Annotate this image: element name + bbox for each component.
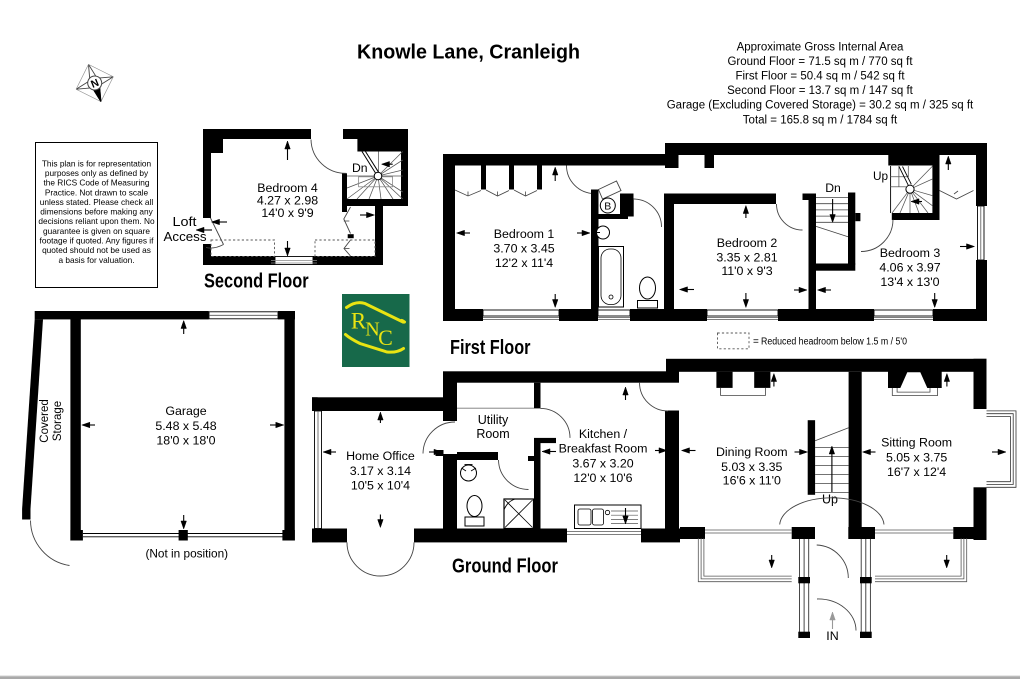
svg-text:Up: Up bbox=[822, 493, 838, 507]
svg-text:4.06 x 3.97: 4.06 x 3.97 bbox=[879, 261, 940, 275]
svg-text:Kitchen /: Kitchen / bbox=[579, 427, 628, 441]
svg-text:Covered: Covered bbox=[39, 399, 51, 442]
svg-text:Practice. Not drawn to scale: Practice. Not drawn to scale bbox=[45, 187, 149, 197]
svg-text:5.05 x 3.75: 5.05 x 3.75 bbox=[886, 451, 947, 465]
svg-text:Garage: Garage bbox=[165, 404, 206, 418]
svg-text:Dn: Dn bbox=[825, 181, 841, 195]
svg-text:3.67 x 3.20: 3.67 x 3.20 bbox=[572, 457, 633, 471]
svg-text:3.17 x 3.14: 3.17 x 3.14 bbox=[350, 464, 411, 478]
svg-text:Second Floor: Second Floor bbox=[204, 270, 309, 293]
svg-text:5.48 x 5.48: 5.48 x 5.48 bbox=[155, 419, 216, 433]
svg-text:Home Office: Home Office bbox=[346, 449, 415, 463]
svg-text:a basis for valuation.: a basis for valuation. bbox=[58, 255, 134, 265]
svg-text:11'0 x 9'3: 11'0 x 9'3 bbox=[721, 264, 772, 278]
svg-text:Bedroom 1: Bedroom 1 bbox=[494, 227, 555, 241]
svg-text:3.70 x 3.45: 3.70 x 3.45 bbox=[493, 242, 554, 256]
svg-text:guarantee is given on square: guarantee is given on square bbox=[43, 226, 150, 236]
svg-text:purposes only as defined by: purposes only as defined by bbox=[45, 168, 149, 178]
svg-text:First Floor = 50.4 sq m / 542: First Floor = 50.4 sq m / 542 sq ft bbox=[735, 71, 905, 83]
svg-text:(Not in position): (Not in position) bbox=[145, 547, 228, 561]
svg-text:12'2 x 11'4: 12'2 x 11'4 bbox=[495, 256, 553, 270]
svg-text:14'0 x 9'9: 14'0 x 9'9 bbox=[261, 206, 313, 220]
svg-text:C: C bbox=[378, 325, 393, 350]
svg-text:the RICS Code of Measuring: the RICS Code of Measuring bbox=[43, 178, 149, 188]
svg-text:Sitting Room: Sitting Room bbox=[881, 436, 952, 450]
svg-text:3.35 x 2.81: 3.35 x 2.81 bbox=[716, 251, 777, 265]
svg-text:10'5 x 10'4: 10'5 x 10'4 bbox=[351, 479, 410, 493]
svg-text:5.03 x 3.35: 5.03 x 3.35 bbox=[721, 460, 782, 474]
svg-text:quoted should not be used as: quoted should not be used as bbox=[42, 245, 151, 255]
svg-text:18'0 x 18'0: 18'0 x 18'0 bbox=[156, 434, 215, 448]
svg-text:16'7 x 12'4: 16'7 x 12'4 bbox=[887, 465, 946, 479]
svg-text:Reduced headroom below 1.5 m /: Reduced headroom below 1.5 m / 5'0 bbox=[761, 337, 907, 348]
svg-text:Utility: Utility bbox=[478, 413, 509, 427]
svg-text:Dining Room: Dining Room bbox=[716, 445, 788, 459]
svg-text:footage if quoted. Any figures: footage if quoted. Any figures if bbox=[40, 236, 155, 246]
svg-text:16'6 x 11'0: 16'6 x 11'0 bbox=[723, 474, 781, 488]
svg-text:Room: Room bbox=[476, 427, 509, 441]
svg-text:Bedroom 3: Bedroom 3 bbox=[880, 246, 941, 260]
svg-text:Up: Up bbox=[873, 169, 889, 183]
svg-text:Ground Floor: Ground Floor bbox=[452, 555, 558, 578]
svg-text:decisions reliant upon them. N: decisions reliant upon them. No bbox=[38, 216, 155, 226]
svg-text:13'4 x 13'0: 13'4 x 13'0 bbox=[880, 275, 939, 289]
svg-text:unless stated. Please check al: unless stated. Please check all bbox=[40, 197, 154, 207]
svg-text:Garage (Excluding Covered Stor: Garage (Excluding Covered Storage) = 30.… bbox=[667, 100, 974, 112]
svg-text:Breakfast Room: Breakfast Room bbox=[559, 442, 648, 456]
svg-text:Second Floor = 13.7 sq m / 147: Second Floor = 13.7 sq m / 147 sq ft bbox=[727, 85, 914, 97]
svg-text:This plan is for representatio: This plan is for representation bbox=[42, 158, 152, 168]
svg-text:Bedroom 2: Bedroom 2 bbox=[717, 236, 778, 250]
svg-text:Access: Access bbox=[164, 230, 207, 244]
svg-text:dimensions before making any: dimensions before making any bbox=[40, 207, 153, 217]
svg-text:Dn: Dn bbox=[352, 161, 368, 175]
svg-text:IN: IN bbox=[826, 629, 838, 643]
svg-text:Storage: Storage bbox=[52, 401, 64, 441]
svg-text:Loft: Loft bbox=[173, 215, 198, 229]
svg-text:=: = bbox=[753, 337, 759, 348]
svg-text:First Floor: First Floor bbox=[450, 336, 531, 359]
svg-text:Total = 165.8 sq m / 1784 sq f: Total = 165.8 sq m / 1784 sq ft bbox=[743, 114, 898, 126]
svg-text:B: B bbox=[604, 201, 611, 213]
svg-text:Approximate Gross Internal Are: Approximate Gross Internal Area bbox=[737, 42, 904, 54]
svg-text:12'0 x 10'6: 12'0 x 10'6 bbox=[573, 471, 632, 485]
svg-text:Ground Floor = 71.5 sq m / 770: Ground Floor = 71.5 sq m / 770 sq ft bbox=[727, 56, 913, 68]
svg-text:Knowle Lane, Cranleigh: Knowle Lane, Cranleigh bbox=[357, 41, 580, 64]
